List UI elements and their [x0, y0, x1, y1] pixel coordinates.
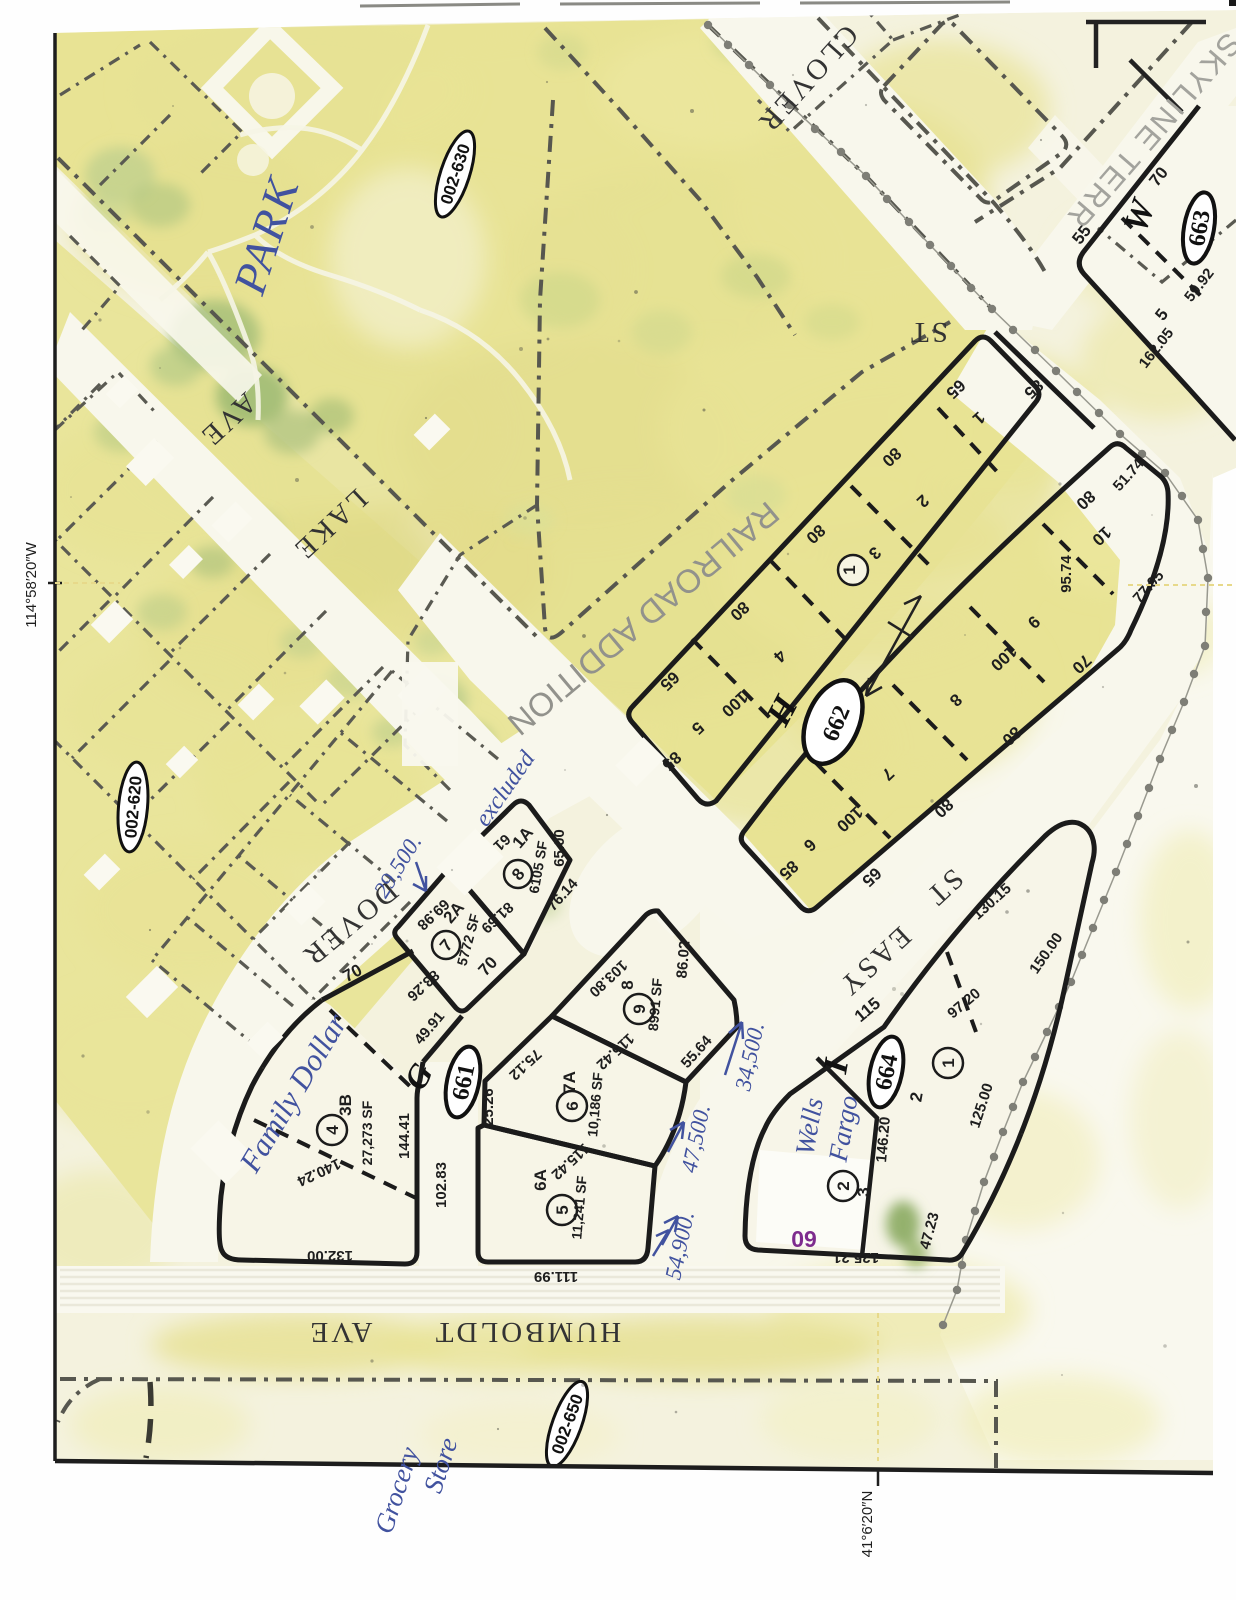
svg-text:114°58′20″W: 114°58′20″W — [23, 541, 40, 627]
svg-text:HUMBOLDT: HUMBOLDT — [433, 1316, 621, 1348]
svg-text:6: 6 — [563, 1101, 582, 1110]
svg-text:6A: 6A — [531, 1169, 550, 1191]
svg-text:AVE: AVE — [308, 1316, 373, 1348]
svg-text:125.21: 125.21 — [833, 1249, 879, 1266]
svg-text:2: 2 — [834, 1181, 853, 1190]
svg-text:1: 1 — [939, 1058, 958, 1067]
svg-text:132.00: 132.00 — [307, 1247, 353, 1264]
svg-text:95.74: 95.74 — [1058, 555, 1075, 593]
svg-text:25.26: 25.26 — [480, 1088, 497, 1126]
svg-text:3: 3 — [854, 1187, 873, 1196]
svg-text:102.83: 102.83 — [433, 1162, 450, 1208]
svg-text:60: 60 — [791, 1226, 817, 1252]
svg-text:111.99: 111.99 — [534, 1268, 578, 1285]
svg-text:1: 1 — [840, 565, 859, 574]
svg-text:65.00: 65.00 — [551, 829, 568, 867]
svg-text:7A: 7A — [560, 1071, 579, 1093]
svg-text:8: 8 — [618, 980, 637, 989]
svg-text:27,273 SF: 27,273 SF — [359, 1100, 375, 1165]
svg-text:ST: ST — [908, 316, 948, 348]
svg-text:86.02: 86.02 — [673, 940, 693, 979]
svg-text:41°6′20″N: 41°6′20″N — [859, 1491, 876, 1558]
svg-text:3B: 3B — [336, 1094, 355, 1116]
svg-text:5: 5 — [553, 1205, 572, 1214]
svg-text:144.41: 144.41 — [396, 1113, 413, 1159]
svg-text:4: 4 — [323, 1125, 342, 1135]
